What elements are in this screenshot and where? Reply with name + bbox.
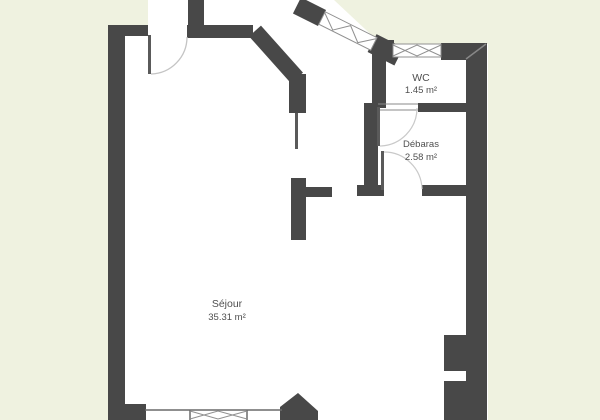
room-label-sejour-area: 35.31 m²	[208, 312, 246, 323]
wall-bottom-left-block	[108, 404, 146, 420]
room-label-wc-name: WC	[412, 72, 430, 84]
wall-top-left	[108, 25, 148, 36]
wall-hall-stub	[303, 187, 332, 197]
room-label-debaras-name: Débaras	[403, 139, 439, 150]
wall-wc-debaras-divider	[418, 103, 468, 112]
floor-plan-canvas: Séjour 35.31 m² WC 1.45 m² Débaras 2.58 …	[0, 0, 600, 420]
wall-top-stub	[188, 0, 204, 27]
debaras-lower-door-leaf	[381, 151, 384, 190]
room-label-sejour-name: Séjour	[212, 298, 243, 310]
wall-debaras-left	[364, 103, 378, 187]
hall-door-leaf	[295, 113, 298, 149]
debaras-upper-door-leaf	[377, 107, 380, 146]
wall-right-pier	[444, 335, 466, 371]
wall-hall-upper	[289, 74, 306, 113]
wc-window-band	[393, 44, 441, 57]
floor-plan: Séjour 35.31 m² WC 1.45 m² Débaras 2.58 …	[0, 0, 600, 420]
wall-debaras-bottom	[422, 185, 467, 196]
room-label-debaras-area: 2.58 m²	[405, 152, 437, 163]
wc-window-group	[393, 44, 441, 57]
wall-right-lower-block	[444, 381, 466, 420]
room-label-wc-area: 1.45 m²	[405, 85, 437, 96]
wall-left	[108, 25, 125, 420]
wall-right	[466, 43, 487, 420]
entry-door-leaf	[148, 35, 151, 74]
